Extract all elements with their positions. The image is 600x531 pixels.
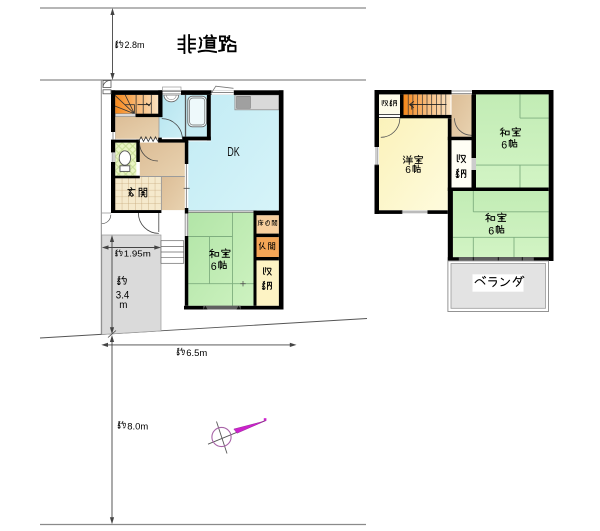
svg-text:6: 6 <box>211 261 217 273</box>
svg-text:8.0m: 8.0m <box>127 421 148 432</box>
svg-text:6: 6 <box>405 165 411 176</box>
svg-text:6: 6 <box>501 139 507 151</box>
svg-text:6: 6 <box>488 225 494 237</box>
svg-text:m: m <box>119 300 127 311</box>
svg-text:6.5m: 6.5m <box>186 348 207 359</box>
svg-text:2.8m: 2.8m <box>125 40 145 50</box>
svg-text:DK: DK <box>227 144 240 159</box>
svg-text:1.95m: 1.95m <box>124 249 151 259</box>
